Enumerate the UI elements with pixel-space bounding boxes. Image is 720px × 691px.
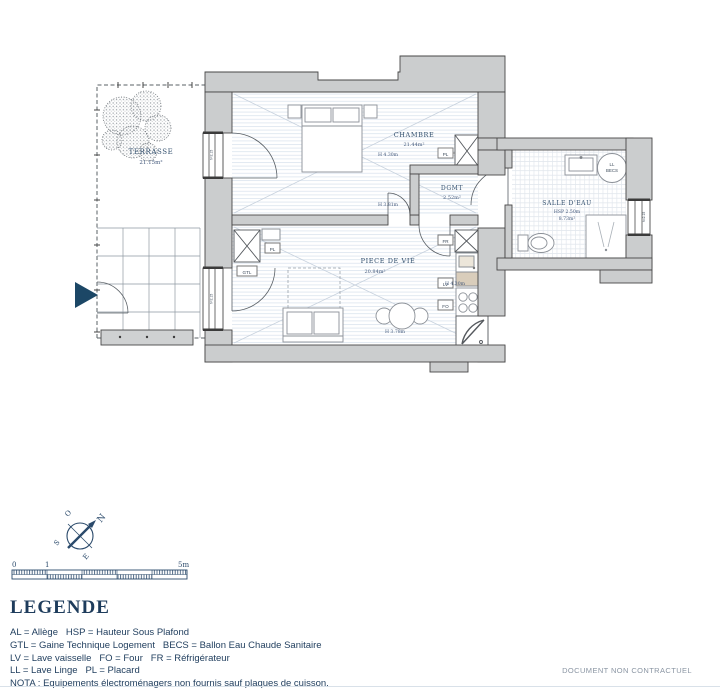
nightstand <box>288 105 301 118</box>
placard-sejour-label: PL <box>270 247 276 252</box>
water-heater-ll-label: LL <box>610 162 615 167</box>
cooktop <box>456 288 478 316</box>
scale-zero-label: 0 <box>12 561 16 569</box>
dgmt-height-label: H 3.81m <box>378 202 399 208</box>
compass-rose: N O S E <box>52 509 108 562</box>
sink-basin <box>459 256 474 267</box>
nightstand <box>364 105 377 118</box>
wall-left-1 <box>205 92 232 133</box>
wall-chambre-dgmt <box>410 165 478 174</box>
wall-bottom <box>205 345 505 362</box>
fridge-box <box>455 230 478 252</box>
scale-one-label: 1 <box>45 561 49 569</box>
legend: LEGENDE AL = Allège HSP = Hauteur Sous P… <box>10 597 329 691</box>
wall-right-2 <box>478 150 505 175</box>
salle-deau-hsp-label: HSP 2.50m <box>554 209 581 215</box>
window-salle-deau: h=2.15 <box>628 199 650 237</box>
window-chambre-note: h=2.15 <box>210 150 214 161</box>
wall-right-3 <box>478 228 505 316</box>
wall-wing-top <box>497 138 633 150</box>
wall-left-2 <box>205 178 232 268</box>
legend-title: LEGENDE <box>10 597 329 619</box>
salle-deau-label: SALLE D'EAU <box>542 200 592 207</box>
faucet <box>473 267 475 269</box>
wall-chambre-sejour <box>232 215 388 225</box>
chambre-area-label: 21.44m² <box>403 142 424 148</box>
piece-de-vie-label: PIECE DE VIE <box>361 257 416 265</box>
water-heater: LL BECS <box>598 154 627 183</box>
terrasse-area: TERRASSE 21.15m² <box>94 82 205 345</box>
legend-line-3: LV = Lave vaisselle FO = Four FR = Réfri… <box>10 653 329 666</box>
window-chambre: h=2.15 <box>203 132 223 180</box>
disclaimer-text: DOCUMENT NON CONTRACTUEL <box>562 666 692 675</box>
terrasse-planter <box>101 330 193 345</box>
window-sejour-note: h=2.15 <box>210 294 214 305</box>
sofa <box>283 308 343 342</box>
wall-wing-bottom <box>497 258 652 270</box>
fridge-label: FR <box>442 239 449 244</box>
bottom-rule <box>0 686 720 687</box>
compass-east-label: E <box>81 552 90 561</box>
dgmt-label: DGMT <box>441 185 463 192</box>
chambre-label: CHAMBRE <box>394 131 435 139</box>
placard-chambre <box>455 135 479 167</box>
bed-pillow <box>333 108 359 122</box>
terrasse-area-label: 21.15m² <box>139 159 162 166</box>
placard-sejour-box <box>262 229 280 240</box>
wall-dgmt-sejour <box>450 215 478 225</box>
washbasin <box>565 155 597 175</box>
shower <box>586 215 626 258</box>
window-sejour: h=2.15 <box>203 267 223 332</box>
compass-south-label: S <box>52 538 61 547</box>
piece-de-vie-height-a: H 4.30m <box>445 281 466 287</box>
placard-chambre-label: PL <box>443 152 449 157</box>
entry-door <box>456 316 488 347</box>
gtl-label: GTL <box>243 270 252 275</box>
chambre-height-label: H 4.30m <box>378 152 399 158</box>
compass-west-label: O <box>63 509 73 519</box>
legend-nota: NOTA : Equipements électroménagers non f… <box>10 678 329 691</box>
entrance-arrow-icon <box>75 282 98 308</box>
scale-bar: 0 1 5m <box>12 561 189 579</box>
legend-line-2: GTL = Gaine Technique Logement BECS = Ba… <box>10 640 329 653</box>
gtl-box <box>234 230 260 262</box>
wall-wing-ledge <box>600 270 652 283</box>
compass-north-label: N <box>96 512 109 525</box>
salle-deau-area-label: 8.73m² <box>559 216 576 222</box>
wall-dgmt-stub <box>410 215 419 225</box>
wall-dgmt-left <box>410 174 419 215</box>
piece-de-vie-height-b: H 3.78m <box>385 329 406 335</box>
floor-plan-drawing: TERRASSE 21.15m² <box>0 0 720 590</box>
legend-line-4: LL = Lave Linge PL = Placard <box>10 665 329 678</box>
wall-top <box>205 56 505 92</box>
scale-five-label: 5m <box>178 561 189 569</box>
oven-label: FO <box>442 304 449 309</box>
wall-sde-left-top <box>505 150 512 168</box>
water-heater-becs-label: BECS <box>606 168 618 173</box>
wall-wing-right-1 <box>626 138 652 200</box>
bed-pillow <box>305 108 331 122</box>
terrasse-label: TERRASSE <box>129 148 174 156</box>
floor-plan-page: TERRASSE 21.15m² <box>0 0 720 691</box>
window-salle-deau-note: h=2.15 <box>642 212 646 223</box>
piece-de-vie-area-label: 20.84m² <box>364 269 385 275</box>
wall-right-1 <box>478 92 505 138</box>
toilet <box>518 234 554 253</box>
dgmt-area-label: 2.52m² <box>443 195 461 201</box>
wall-sde-left-bottom <box>505 205 512 258</box>
wall-bottom-step <box>430 362 468 372</box>
legend-line-1: AL = Allège HSP = Hauteur Sous Plafond <box>10 627 329 640</box>
